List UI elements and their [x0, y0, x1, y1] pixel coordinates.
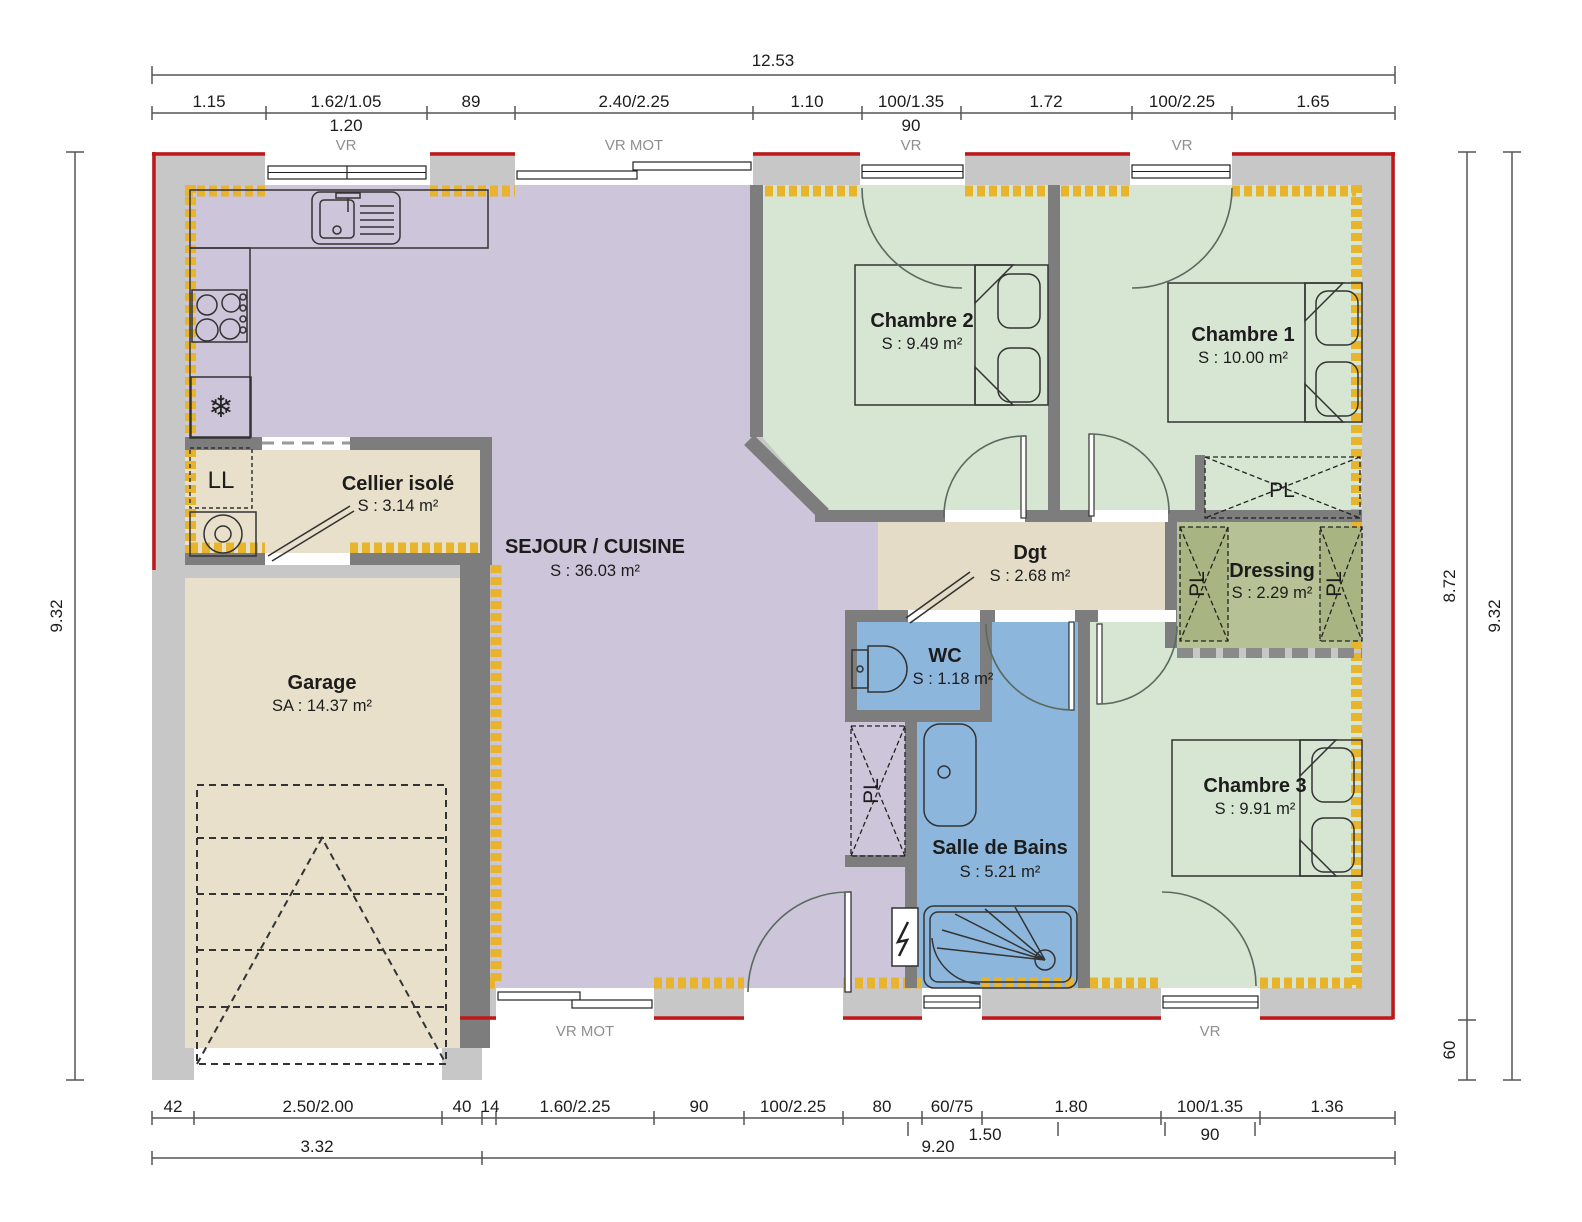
dimensions-top: 12.53 1.15 1.62/1.05 89 2.40/2.25 1.10 1…: [152, 51, 1395, 154]
dim-bottom-sub: 1.50: [968, 1125, 1001, 1144]
area-dgt: S : 2.68 m²: [990, 567, 1071, 585]
dim-bottom-seg: 2.50/2.00: [283, 1097, 354, 1116]
vr-label-bottom: VR: [1200, 1023, 1221, 1040]
vr-label-bottom: VR MOT: [556, 1023, 614, 1040]
room-chambre1-floor: [1060, 185, 1362, 510]
dim-top-sub: 1.20: [329, 116, 362, 135]
label-chambre3: Chambre 3: [1203, 775, 1306, 797]
ll-label: LL: [208, 467, 235, 494]
dim-bottom-seg: 40: [453, 1097, 472, 1116]
dim-left-total: 9.32: [47, 599, 66, 632]
area-wc: S : 1.18 m²: [913, 670, 994, 688]
dim-top-sub: 90: [902, 116, 921, 135]
living-sliding-door: [517, 171, 637, 179]
label-sdb: Salle de Bains: [932, 837, 1068, 859]
dim-bottom-seg: 100/1.35: [1177, 1097, 1243, 1116]
area-sejour: S : 36.03 m²: [550, 562, 640, 580]
vr-label: VR: [901, 137, 922, 154]
dim-top-seg: 2.40/2.25: [599, 92, 670, 111]
area-sdb: S : 5.21 m²: [960, 863, 1041, 881]
area-garage: SA : 14.37 m²: [272, 697, 372, 715]
dimensions-right: 8.72 60 9.32: [1440, 152, 1521, 1080]
vr-label: VR: [1172, 137, 1193, 154]
entrance-door-leaf: [845, 892, 851, 992]
label-dressing: Dressing: [1229, 560, 1315, 582]
dim-right-offset: 60: [1440, 1041, 1459, 1060]
dim-top-seg: 1.65: [1296, 92, 1329, 111]
dim-bottom-total: 3.32: [300, 1137, 333, 1156]
dimensions-left: 9.32: [47, 152, 84, 1080]
room-dgt-floor: [878, 522, 1165, 610]
label-wc: WC: [928, 645, 961, 667]
dim-top-seg: 1.10: [790, 92, 823, 111]
dim-top-seg: 1.72: [1029, 92, 1062, 111]
dim-bottom-seg: 1.60/2.25: [540, 1097, 611, 1116]
chambre1-door-leaf: [1089, 434, 1094, 516]
sdb-door-leaf: [1069, 622, 1074, 710]
area-chambre3: S : 9.91 m²: [1215, 800, 1296, 818]
dim-top-seg: 100/2.25: [1149, 92, 1215, 111]
area-chambre1: S : 10.00 m²: [1198, 349, 1288, 367]
area-dressing: S : 2.29 m²: [1232, 584, 1313, 602]
area-cellier: S : 3.14 m²: [358, 497, 439, 515]
closet-dressing-right-label: PL: [1323, 571, 1346, 597]
chambre2-door-leaf: [1021, 436, 1026, 518]
chambre3-door-leaf: [1097, 624, 1102, 704]
label-chambre1: Chambre 1: [1191, 324, 1294, 346]
dim-bottom-seg: 42: [164, 1097, 183, 1116]
dim-bottom-seg: 100/2.25: [760, 1097, 826, 1116]
label-sejour: SEJOUR / CUISINE: [505, 536, 685, 558]
label-cellier: Cellier isolé: [342, 473, 454, 495]
svg-text:❄: ❄: [208, 391, 233, 424]
dim-top-seg: 89: [462, 92, 481, 111]
dim-top-seg: 100/1.35: [878, 92, 944, 111]
closet-dressing-left-label: PL: [1186, 571, 1209, 597]
label-chambre2: Chambre 2: [870, 310, 973, 332]
dim-right-inner: 8.72: [1440, 569, 1459, 602]
dim-top-seg: 1.15: [192, 92, 225, 111]
floor-plan-page: ❄ LL: [0, 0, 1582, 1222]
dim-bottom-seg: 90: [690, 1097, 709, 1116]
vr-label: VR: [336, 137, 357, 154]
dim-bottom-seg: 1.80: [1054, 1097, 1087, 1116]
vr-label: VR MOT: [605, 137, 663, 154]
closet-chambre1-label: PL: [1269, 479, 1295, 502]
dim-bottom-sub: 90: [1201, 1125, 1220, 1144]
closet-couloir-label: PL: [860, 778, 883, 804]
dim-bottom-seg: 80: [873, 1097, 892, 1116]
dim-bottom-total: 9.20: [921, 1137, 954, 1156]
dim-top-total: 12.53: [752, 51, 795, 70]
area-chambre2: S : 9.49 m²: [882, 335, 963, 353]
floor-plan-drawing: ❄ LL: [0, 0, 1582, 1222]
label-dgt: Dgt: [1013, 542, 1047, 564]
dim-right-total: 9.32: [1485, 599, 1504, 632]
electrical-panel-icon: [892, 908, 918, 966]
room-garage-floor: [185, 578, 460, 1048]
dim-bottom-seg: 1.36: [1310, 1097, 1343, 1116]
dim-top-seg: 1.62/1.05: [311, 92, 382, 111]
dim-bottom-seg: 14: [481, 1097, 500, 1116]
label-garage: Garage: [288, 672, 357, 694]
dim-bottom-seg: 60/75: [931, 1097, 974, 1116]
living-rear-window: [498, 992, 580, 1000]
